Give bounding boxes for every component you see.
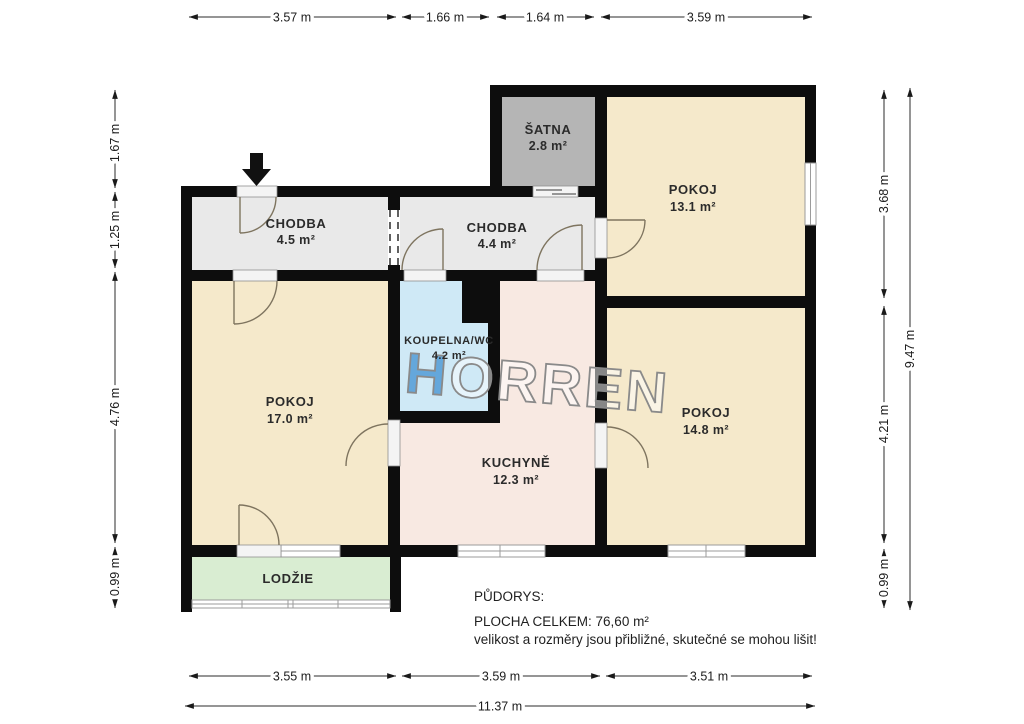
label-satna-area: 2.8 m² bbox=[529, 139, 568, 153]
wall-satna-bottom-b bbox=[578, 186, 607, 197]
label-pokoj-131: POKOJ bbox=[669, 182, 718, 197]
wall-mid-vert-b bbox=[388, 265, 400, 420]
dim-top-3: 1.64 m bbox=[526, 11, 564, 25]
label-pokoj-148: POKOJ bbox=[682, 405, 731, 420]
wall-mid-band-b bbox=[277, 270, 404, 281]
dim-right-3: 0.99 m bbox=[877, 559, 891, 597]
label-chodba-45-area: 4.5 m² bbox=[277, 233, 316, 247]
opening-chodba-dashed bbox=[388, 210, 400, 265]
dim-left-1: 1.67 m bbox=[108, 124, 122, 162]
dim-right-2: 4.21 m bbox=[877, 405, 891, 443]
footer-total-area: PLOCHA CELKEM: 76,60 m² bbox=[474, 614, 649, 629]
wall-bottom-c bbox=[545, 545, 668, 557]
footer-notes: PŮDORYS: PLOCHA CELKEM: 76,60 m² velikos… bbox=[474, 589, 817, 647]
label-pokoj-17-area: 17.0 m² bbox=[267, 412, 313, 426]
lodzie-railing bbox=[192, 600, 390, 608]
wall-lodzie-right bbox=[390, 545, 401, 612]
label-pokoj-17: POKOJ bbox=[266, 394, 315, 409]
wall-mid-vert-c bbox=[388, 466, 400, 545]
entrance-arrow-icon bbox=[242, 153, 271, 186]
wall-bottom-d bbox=[745, 545, 816, 557]
footer-disclaimer: velikost a rozměry jsou přibližné, skute… bbox=[474, 632, 817, 647]
label-chodba-44: CHODBA bbox=[467, 220, 528, 235]
label-chodba-45: CHODBA bbox=[266, 216, 327, 231]
dim-bottom-total: 11.37 m bbox=[478, 700, 522, 714]
window-kuchyne-bottom bbox=[458, 545, 545, 557]
wall-top-right bbox=[490, 85, 816, 97]
wall-pokoj131-b bbox=[595, 258, 607, 270]
footer-title: PŮDORYS: bbox=[474, 589, 544, 604]
floor-plan-canvas: HORREN ŠATNA 2.8 m² POKOJ 13.1 m² CHODBA… bbox=[0, 0, 1024, 724]
label-koupelna: KOUPELNA/WC bbox=[404, 335, 494, 347]
wall-kuchyne-pokoj148-b bbox=[595, 468, 607, 545]
label-pokoj-148-area: 14.8 m² bbox=[683, 423, 729, 437]
door-threshold-pokoj17-kuchyne bbox=[388, 420, 400, 466]
label-lodzie: LODŽIE bbox=[262, 571, 313, 586]
door-threshold-balcony bbox=[237, 545, 281, 557]
wall-top-left-a bbox=[181, 186, 237, 197]
dim-top-1: 3.57 m bbox=[273, 11, 311, 25]
wall-top-left-b bbox=[277, 186, 502, 197]
door-threshold-pokoj131 bbox=[595, 218, 607, 258]
wall-satna-bottom-a bbox=[502, 186, 533, 197]
dim-bottom-3: 3.51 m bbox=[690, 670, 728, 684]
door-threshold-entrance bbox=[237, 186, 277, 197]
label-pokoj-131-area: 13.1 m² bbox=[670, 200, 716, 214]
wall-mid-band-a bbox=[181, 270, 233, 281]
dim-right-1: 3.68 m bbox=[877, 175, 891, 213]
dim-right-total: 9.47 m bbox=[903, 330, 917, 368]
door-threshold-pokoj148 bbox=[595, 423, 607, 468]
label-kuchyne: KUCHYNĚ bbox=[482, 455, 550, 470]
wall-pokoj131-a bbox=[595, 197, 607, 218]
door-threshold-satna bbox=[533, 186, 578, 197]
wall-right-outer-a bbox=[805, 97, 816, 163]
wall-mid-vert-a bbox=[388, 197, 400, 210]
dim-bottom-1: 3.55 m bbox=[273, 670, 311, 684]
door-threshold-koupelna bbox=[404, 270, 446, 281]
dim-left-2: 1.25 m bbox=[108, 211, 122, 249]
dim-top-4: 3.59 m bbox=[687, 11, 725, 25]
wall-right-outer-b bbox=[805, 225, 816, 557]
wall-satna-left bbox=[490, 97, 502, 186]
wall-pokoj131-148-divider bbox=[595, 296, 816, 308]
label-satna: ŠATNA bbox=[525, 122, 572, 137]
wall-bottom-a bbox=[181, 545, 237, 557]
window-pokoj17-lodzie bbox=[281, 545, 340, 557]
dim-bottom-2: 3.59 m bbox=[482, 670, 520, 684]
door-threshold-kuchyne bbox=[537, 270, 584, 281]
label-koupelna-area: 4.2 m² bbox=[432, 350, 466, 362]
label-kuchyne-area: 12.3 m² bbox=[493, 473, 539, 487]
floor-plan-page: HORREN ŠATNA 2.8 m² POKOJ 13.1 m² CHODBA… bbox=[0, 0, 1024, 724]
dim-top-2: 1.66 m bbox=[426, 11, 464, 25]
label-chodba-44-area: 4.4 m² bbox=[478, 237, 517, 251]
window-pokoj148-bottom bbox=[668, 545, 745, 557]
window-pokoj131-right bbox=[805, 163, 816, 225]
wall-satna-right bbox=[595, 97, 607, 186]
wall-mid-band-c bbox=[446, 270, 537, 281]
dim-left-3: 4.76 m bbox=[108, 388, 122, 426]
dim-left-4: 0.99 m bbox=[108, 558, 122, 596]
wall-koupelna-bottom bbox=[400, 411, 488, 423]
door-threshold-pokoj17 bbox=[233, 270, 277, 281]
wall-koupelna-block bbox=[462, 281, 488, 323]
